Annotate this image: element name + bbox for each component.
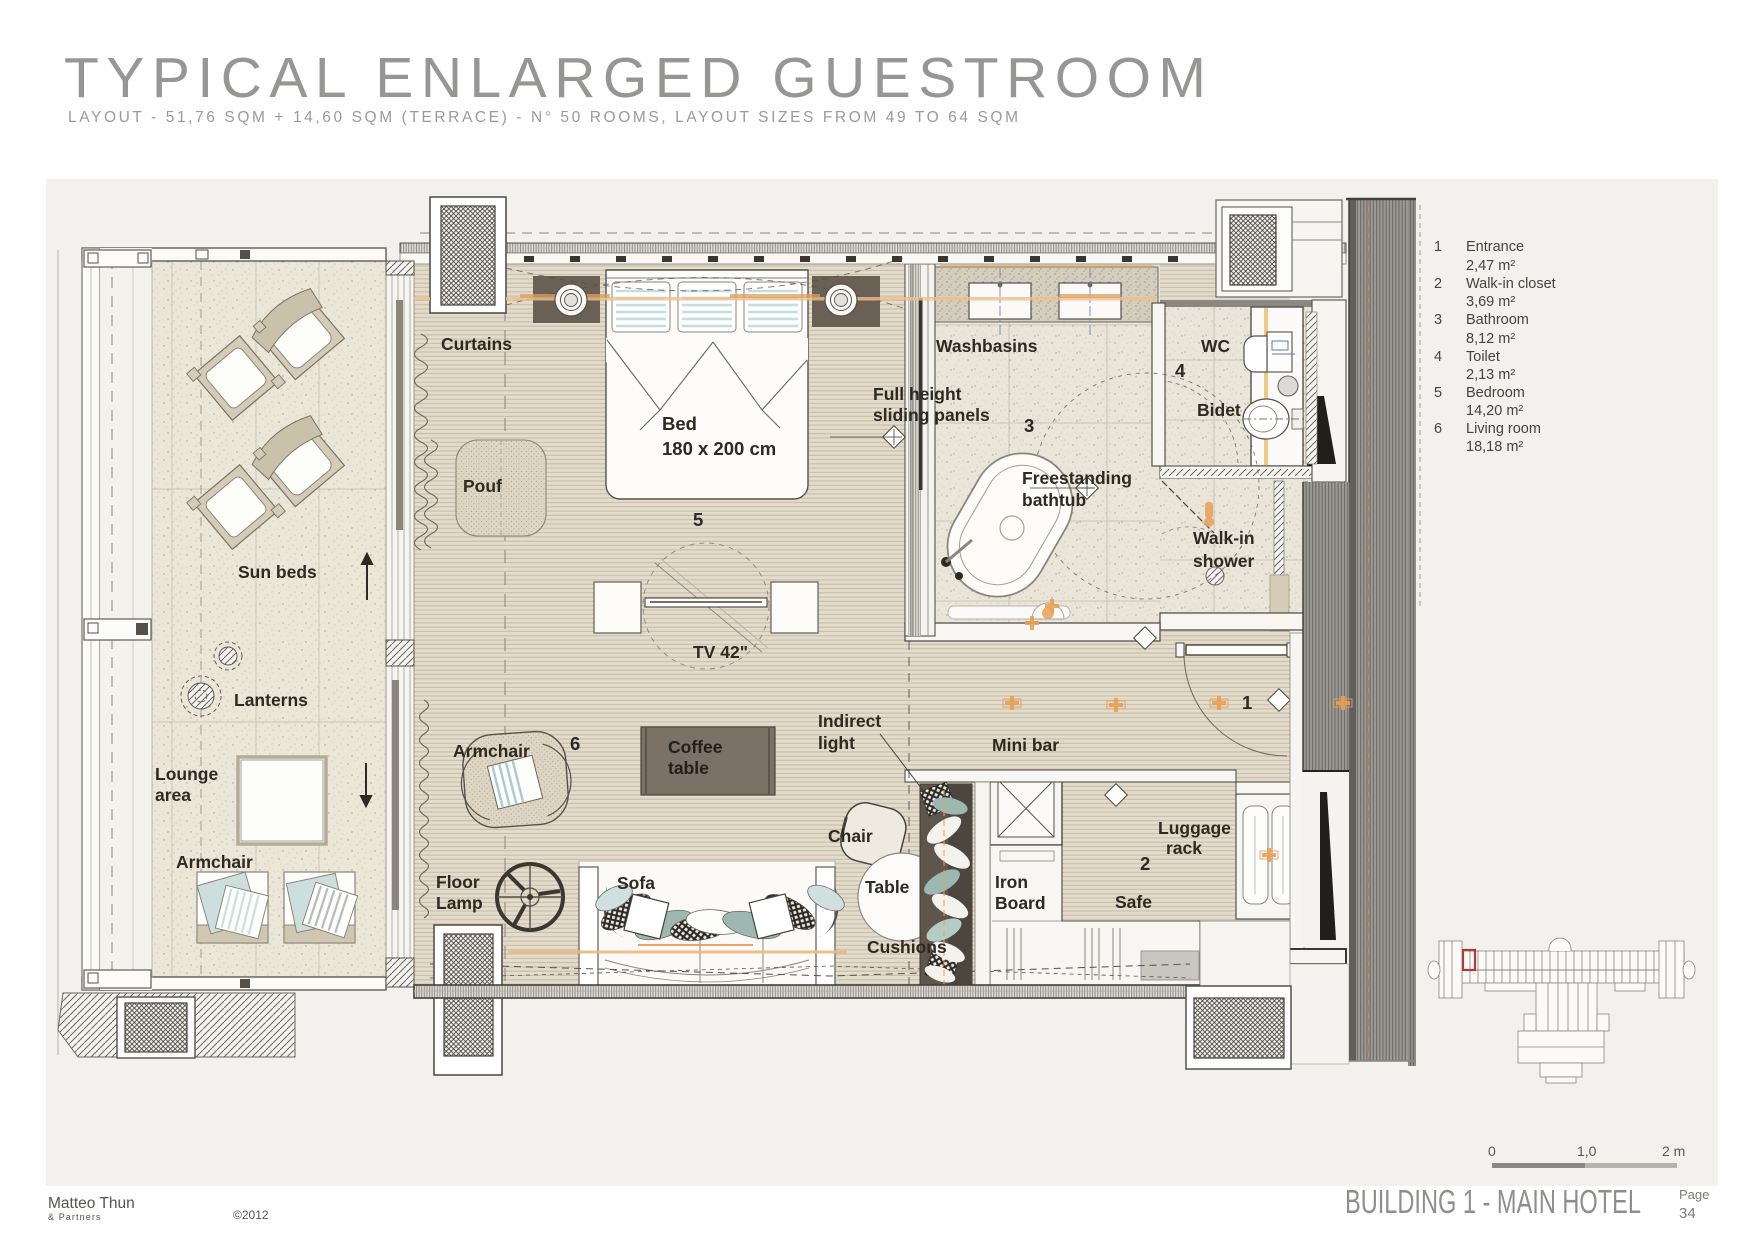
svg-text:8,12 m²: 8,12 m² (1466, 331, 1515, 347)
svg-text:3,69 m²: 3,69 m² (1466, 294, 1515, 310)
svg-text:Lamp: Lamp (436, 893, 483, 913)
svg-text:area: area (155, 785, 191, 805)
svg-text:rack: rack (1166, 838, 1202, 858)
svg-text:Washbasins: Washbasins (936, 336, 1038, 356)
svg-text:Lounge: Lounge (155, 764, 218, 784)
svg-text:Table: Table (865, 877, 910, 897)
svg-text:Cushions: Cushions (867, 937, 947, 957)
svg-text:WC: WC (1201, 336, 1231, 356)
svg-text:Safe: Safe (1115, 892, 1152, 912)
svg-text:6: 6 (1434, 421, 1442, 437)
svg-text:Mini bar: Mini bar (992, 735, 1059, 755)
svg-text:3: 3 (1024, 415, 1034, 436)
svg-text:TV 42": TV 42" (693, 642, 748, 662)
svg-text:Sun beds: Sun beds (238, 562, 317, 582)
svg-text:1: 1 (1242, 692, 1252, 713)
svg-text:Walk-in: Walk-in (1193, 528, 1255, 548)
svg-text:2,47 m²: 2,47 m² (1466, 258, 1515, 274)
svg-text:4: 4 (1175, 360, 1186, 381)
svg-text:3: 3 (1434, 312, 1442, 328)
svg-text:6: 6 (570, 733, 580, 754)
svg-text:Bidet: Bidet (1197, 400, 1241, 420)
svg-text:shower: shower (1193, 551, 1254, 571)
svg-text:Bathroom: Bathroom (1466, 312, 1529, 328)
svg-text:& Partners: & Partners (48, 1212, 102, 1222)
svg-text:Living room: Living room (1466, 421, 1541, 437)
svg-text:0: 0 (1488, 1143, 1496, 1159)
svg-text:TYPICAL ENLARGED GUESTROOM: TYPICAL ENLARGED GUESTROOM (64, 46, 1213, 110)
svg-text:Full height: Full height (873, 384, 962, 404)
svg-text:Freestanding: Freestanding (1022, 468, 1132, 488)
svg-text:light: light (818, 733, 855, 753)
svg-text:1: 1 (1434, 239, 1442, 255)
svg-text:Coffee: Coffee (668, 737, 723, 757)
svg-text:bathtub: bathtub (1022, 490, 1086, 510)
svg-text:Lanterns: Lanterns (234, 690, 308, 710)
svg-text:Indirect: Indirect (818, 711, 881, 731)
svg-text:1,0: 1,0 (1577, 1143, 1597, 1159)
svg-text:5: 5 (693, 509, 703, 530)
svg-text:Bedroom: Bedroom (1466, 385, 1525, 401)
svg-text:Luggage: Luggage (1158, 818, 1231, 838)
svg-text:Armchair: Armchair (453, 741, 530, 761)
svg-text:180 x 200 cm: 180 x 200 cm (662, 438, 776, 459)
svg-text:©2012: ©2012 (233, 1208, 269, 1222)
svg-text:Matteo Thun: Matteo Thun (48, 1195, 135, 1212)
svg-text:table: table (668, 758, 709, 778)
svg-text:2 m: 2 m (1662, 1143, 1685, 1159)
svg-text:Floor: Floor (436, 872, 480, 892)
svg-text:34: 34 (1679, 1205, 1696, 1222)
svg-text:Chair: Chair (828, 826, 873, 846)
svg-text:Board: Board (995, 893, 1046, 913)
svg-text:2,13 m²: 2,13 m² (1466, 367, 1515, 383)
svg-text:Armchair: Armchair (176, 852, 253, 872)
svg-text:sliding panels: sliding panels (873, 405, 990, 425)
svg-text:Page: Page (1679, 1187, 1709, 1202)
svg-text:Iron: Iron (995, 872, 1028, 892)
svg-text:4: 4 (1434, 349, 1442, 365)
svg-text:18,18 m²: 18,18 m² (1466, 439, 1523, 455)
svg-text:Curtains: Curtains (441, 334, 512, 354)
svg-text:5: 5 (1434, 385, 1442, 401)
svg-text:BUILDING 1 - MAIN HOTEL: BUILDING 1 - MAIN HOTEL (1345, 1183, 1641, 1220)
svg-text:Entrance: Entrance (1466, 239, 1524, 255)
svg-text:2: 2 (1434, 276, 1442, 292)
svg-text:Bed: Bed (662, 413, 697, 434)
svg-text:14,20 m²: 14,20 m² (1466, 403, 1523, 419)
svg-text:2: 2 (1140, 853, 1150, 874)
svg-text:Toilet: Toilet (1466, 349, 1500, 365)
svg-text:Walk-in closet: Walk-in closet (1466, 276, 1556, 292)
svg-text:Pouf: Pouf (463, 476, 502, 496)
svg-text:Sofa: Sofa (617, 873, 655, 893)
